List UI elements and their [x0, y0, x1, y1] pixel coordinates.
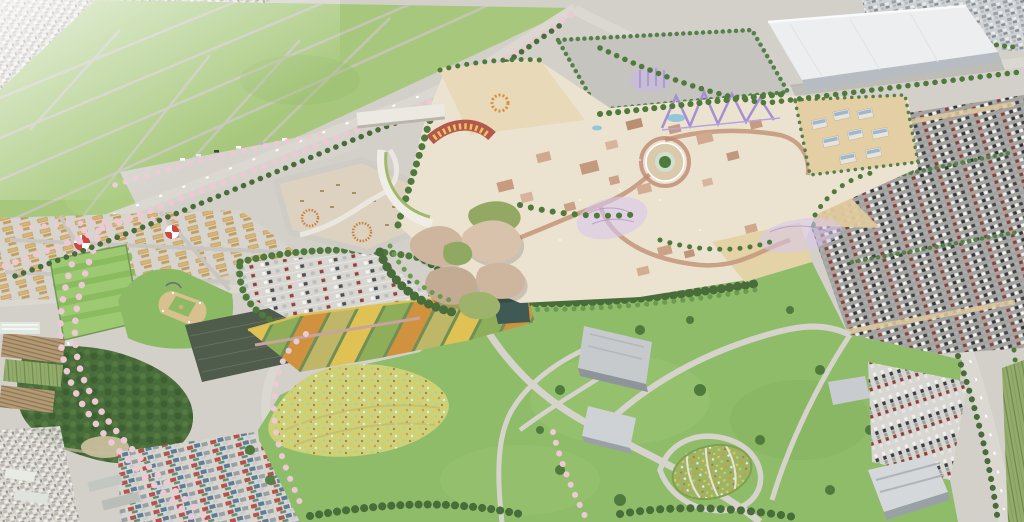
aerial-rendering: [0, 0, 1024, 522]
circus-tent: [165, 225, 179, 239]
central-plaza: [641, 138, 689, 186]
solar-village: [795, 95, 918, 175]
atmospheric-haze: [0, 0, 340, 200]
